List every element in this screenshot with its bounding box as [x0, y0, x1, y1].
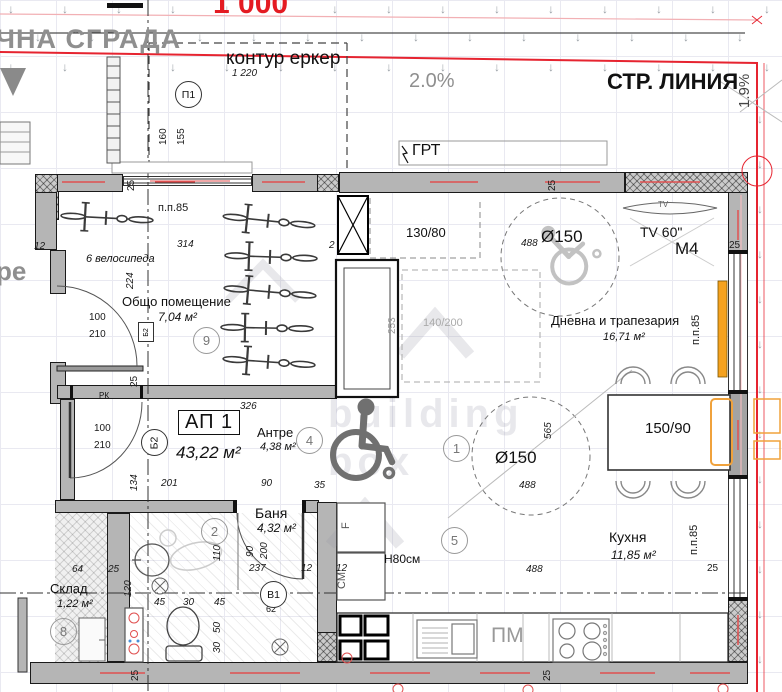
chair-icon: [671, 481, 705, 498]
dim-label: 25: [547, 180, 558, 191]
boundary-tick: [107, 3, 143, 8]
bay-contour-label: контур еркер: [226, 48, 340, 70]
dim-label: 25: [129, 376, 140, 387]
leader-line: [448, 370, 632, 518]
chair-icon: [671, 367, 705, 384]
bath-sink-icon: [132, 544, 169, 576]
position-marker: 5: [441, 527, 468, 554]
dim-label: 200: [259, 542, 270, 559]
dim-label: 25: [729, 240, 740, 251]
axis-tag-b2-label: Б2: [143, 328, 150, 337]
dishwasher-label: ПМ: [491, 624, 524, 648]
red-guide-line: [0, 14, 757, 20]
counter-height-label: Н80см: [384, 552, 420, 566]
dim-label: 155: [176, 128, 187, 145]
neighbour-building-icon: [0, 57, 120, 164]
room-area-common: 7,04 м²: [158, 310, 197, 324]
door-leaf-outside: [18, 598, 27, 672]
dim-label: 25: [108, 564, 119, 575]
dim-label: 120: [123, 580, 134, 597]
room-area-living: 16,71 м²: [603, 331, 645, 343]
dim-label: 253: [387, 317, 398, 334]
dim-label: п.п.85: [158, 202, 188, 214]
room-name-antre: Антре: [257, 425, 293, 440]
axis-bubble-p1-label: П1: [182, 89, 195, 101]
grt-label: ГРТ: [412, 142, 440, 160]
bicycle-icons: [60, 202, 317, 380]
hydrant-label: РК: [99, 391, 109, 400]
fridge-label: F: [340, 522, 352, 529]
room-name-kitchen: Кухня: [609, 529, 646, 545]
dim-label: 210: [94, 440, 111, 451]
dim-label: 210: [89, 329, 106, 340]
niche-size-label: 130/80: [406, 225, 446, 240]
dim-label: 45: [154, 597, 165, 608]
dim-label: 100: [94, 423, 111, 434]
slope-left-label: 2.0%: [409, 70, 455, 93]
apartment-area: 43,22 м²: [176, 443, 241, 463]
tv-size-label: TV 60": [640, 224, 682, 240]
axis-tag-b2-square: Б2: [138, 322, 154, 342]
dim-label: 50: [212, 622, 223, 633]
axis-bubble-p1: П1: [175, 81, 202, 108]
dim-label: 30: [183, 597, 194, 608]
dim-label: 488: [526, 564, 543, 575]
dim-label: 201: [161, 478, 178, 489]
dim-label: 64: [72, 564, 83, 575]
duct-shaft-icon: [338, 196, 368, 254]
dim-label: 12: [34, 241, 45, 252]
dim-label: 314: [177, 239, 194, 250]
dim-label: 565: [543, 422, 554, 439]
dim-label: 90: [245, 546, 256, 557]
dim-label: 140/200: [423, 317, 463, 329]
dim-label: 30: [212, 642, 223, 653]
dim-label: 25: [126, 180, 137, 191]
apartment-id-box: АП 1: [178, 410, 240, 435]
window-sill-outside: [112, 162, 252, 173]
plan-linework: [0, 0, 782, 692]
dim-label: 25: [542, 670, 553, 681]
axis-bubble-b2: Б2: [141, 429, 168, 456]
axis-bubble-v1-label: В1: [267, 589, 280, 601]
room-name-storage: Склад: [50, 581, 88, 596]
washer-label: СМ: [336, 572, 348, 589]
chair-icon: [616, 367, 650, 384]
dim-label: 12: [336, 563, 347, 574]
dim-label: п.п.85: [688, 525, 700, 555]
pipe-shaft-icon: [125, 608, 143, 662]
position-marker: 2: [201, 518, 228, 545]
toilet-icon: [166, 607, 202, 661]
dim-label: 2: [329, 240, 335, 251]
neighbor-building-label-left: ре: [0, 256, 26, 287]
dim-label: 160: [158, 128, 169, 145]
room-note-bikes: 6 велосипеда: [86, 253, 155, 265]
m4-label: M4: [675, 239, 699, 259]
position-marker: 8: [50, 618, 77, 645]
dim-label: 1 220: [232, 68, 257, 79]
room-area-kitchen: 11,85 м²: [611, 548, 656, 562]
slope-right-label: 1.9%: [736, 74, 753, 108]
dim-label: 488: [519, 480, 536, 491]
dining-table-label: 150/90: [645, 420, 691, 437]
dim-label: 12: [301, 563, 312, 574]
dim-label: 326: [240, 401, 257, 412]
dim-label: 45: [214, 597, 225, 608]
dim-label: 100: [89, 312, 106, 323]
room-area-antre: 4,38 м²: [260, 441, 296, 453]
dim-label: 237: [249, 563, 266, 574]
dim-label: 35: [314, 480, 325, 491]
wheelchair-icon: [333, 399, 394, 479]
dim-label: 224: [125, 272, 136, 289]
turn-circle-label-1: Ø150: [541, 227, 583, 247]
position-marker: 1: [443, 435, 470, 462]
turn-circle-label-2: Ø150: [495, 448, 537, 468]
lightning-icon: [402, 146, 408, 163]
dim-label: 134: [129, 474, 140, 491]
room-name-common: Общо помещение: [122, 294, 231, 309]
red-elevation-label: 1 000: [213, 0, 288, 21]
tv-label: TV: [658, 200, 668, 209]
dim-label: 25: [130, 670, 141, 681]
street-line-label: СТР. ЛИНИЯ: [607, 69, 738, 95]
position-marker: 4: [296, 427, 323, 454]
chair-icon: [616, 481, 650, 498]
dim-label: п.п.85: [690, 315, 702, 345]
radiator-orange: [718, 281, 727, 377]
turning-circle-1: [501, 198, 619, 316]
room-name-bath: Баня: [255, 505, 287, 521]
room-area-storage: 1,22 м²: [57, 598, 93, 610]
axis-bubble-b2-label: Б2: [148, 436, 160, 449]
dim-label: 110: [212, 545, 223, 561]
wheelchair-outline-icon: [524, 213, 603, 291]
position-marker: 9: [193, 327, 220, 354]
axis-bubble-v1: В1: [260, 581, 287, 608]
room-name-living: Дневна и трапезария: [551, 313, 679, 328]
dim-label: 25: [707, 563, 718, 574]
neighbor-building-label: ЧНА СГРАДА: [0, 24, 181, 55]
kitchen-counter: [337, 613, 728, 662]
dim-label: 90: [261, 478, 272, 489]
floor-plan-canvas: ↓↓↓↓↓↓↓↓↓↓↓↓↓↓↓↓↓↓↓↓↓↓↓↓↓↓↓↓↓↓↓↓↓↓↓↓↓↓↓↓…: [0, 0, 782, 692]
dim-label: 488: [521, 238, 538, 249]
room-area-bath: 4,32 м²: [257, 521, 296, 535]
